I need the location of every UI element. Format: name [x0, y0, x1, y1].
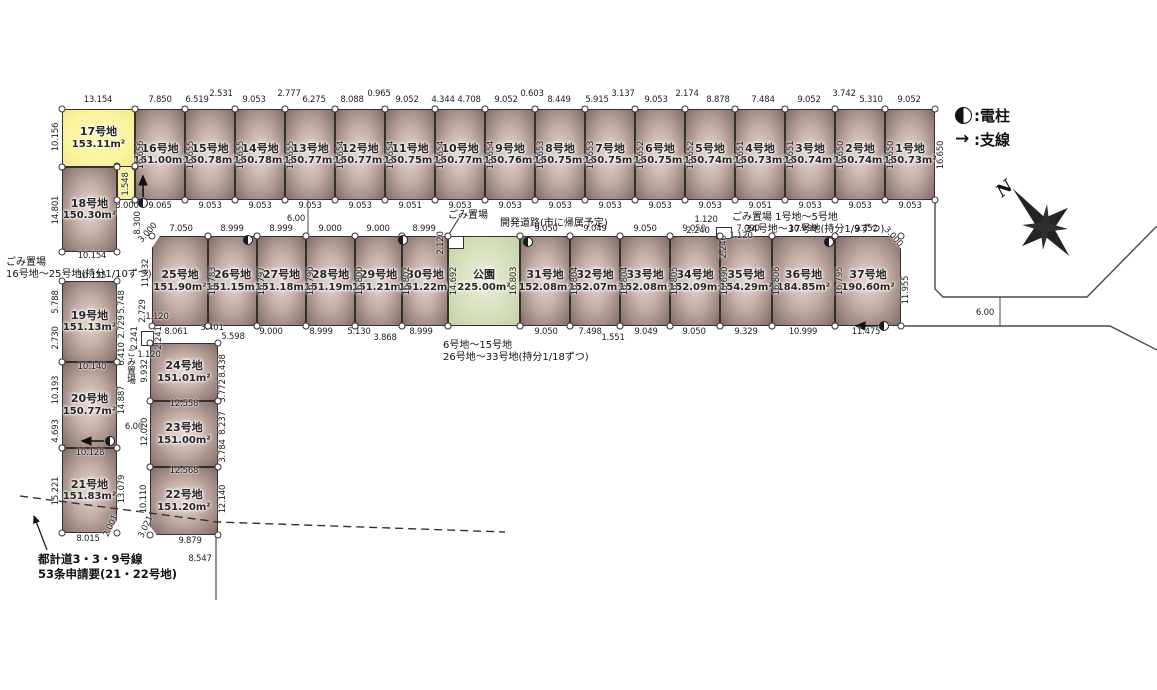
dimension-label: 16.804 [570, 267, 580, 296]
lot-number-label: 21号地 [71, 479, 108, 491]
lot-number-label: 公園 [473, 269, 495, 281]
survey-point [882, 106, 889, 113]
dimension-label: 7.498 [578, 327, 601, 337]
survey-point [382, 106, 389, 113]
dimension-label: 9.065 [148, 201, 171, 211]
dimension-label: 15.221 [51, 477, 61, 506]
lot-number-label: 28号地 [312, 269, 349, 281]
dimension-label: 14.801 [51, 196, 61, 225]
dimension-label: 2.777 [277, 89, 300, 99]
survey-point [182, 106, 189, 113]
lot-number-label: 34号地 [676, 269, 713, 281]
survey-point [114, 530, 121, 537]
dimension-label: 16.650 [836, 141, 846, 170]
dimension-label: 16.654 [336, 141, 346, 170]
utility-pole-icon [105, 436, 115, 446]
utility-pole-icon [824, 237, 834, 247]
dimension-label: 2.730 [51, 326, 61, 349]
dimension-label: 9.052 [494, 95, 517, 105]
compass-rose: N [978, 156, 1094, 277]
dimension-label: 9.053 [598, 201, 621, 211]
lot-number-label: 5号地 [695, 143, 725, 155]
dimension-label: 9.051 [398, 201, 421, 211]
dimension-label: 10.999 [789, 327, 818, 337]
lot-number-label: 15号地 [191, 143, 228, 155]
lot-number-label: 10号地 [441, 143, 478, 155]
survey-point [682, 197, 689, 204]
dimension-label: 4.344 [431, 95, 454, 105]
survey-point [582, 197, 589, 204]
survey-point [782, 197, 789, 204]
dimension-label: 9.052 [395, 95, 418, 105]
lot-number-label: 18号地 [71, 198, 108, 210]
dimension-label: 8.438 [218, 354, 228, 377]
dimension-label: 16.650 [886, 141, 896, 170]
dimension-label: 1.551 [601, 333, 624, 343]
dimension-label: 6.519 [185, 95, 208, 105]
lot-number-label: 2号地 [845, 143, 875, 155]
dimension-label: 9.053 [644, 95, 667, 105]
dimension-label: 12.020 [140, 418, 150, 447]
survey-point [59, 445, 66, 452]
utility-pole-icon [398, 235, 408, 245]
dimension-label: 8.999 [269, 224, 292, 234]
lot-area-label: 150.77m² [63, 406, 116, 417]
dimension-label: 9.053 [548, 201, 571, 211]
survey-point [114, 445, 121, 452]
dimension-label: 16.802 [402, 267, 412, 296]
dimension-label: 15.690 [720, 267, 730, 296]
lot-number-label: 11号地 [391, 143, 428, 155]
dimension-label: 8.015 [76, 534, 99, 544]
dimension-label: 9.053 [848, 201, 871, 211]
lot-number-label: 14号地 [241, 143, 278, 155]
survey-point [215, 532, 222, 539]
dimension-label: 2.241 [130, 326, 140, 349]
dimension-label: 8.449 [547, 95, 570, 105]
lot-area-label: 151.00m² [157, 435, 210, 446]
survey-point [582, 106, 589, 113]
dimension-label: 10.156 [51, 123, 61, 152]
dimension-label: 2.729 [117, 315, 127, 338]
survey-point [632, 106, 639, 113]
survey-point [667, 233, 674, 240]
dimension-label: 10.193 [51, 376, 61, 405]
survey-point [717, 323, 724, 330]
survey-point [532, 197, 539, 204]
dimension-label: 16.651 [786, 141, 796, 170]
lot-number-label: 3号地 [795, 143, 825, 155]
dimension-label: 12.140 [218, 485, 228, 514]
dimension-label: 9.053 [242, 95, 265, 105]
lot-number-label: 27号地 [263, 269, 300, 281]
dimension-label: 8.061 [164, 327, 187, 337]
survey-point [147, 398, 154, 405]
dimension-label: 16.795 [835, 267, 845, 296]
survey-point [59, 164, 66, 171]
utility-pole-icon [523, 237, 533, 247]
lot-number-label: 29号地 [360, 269, 397, 281]
lot-number-label: 1号地 [895, 143, 925, 155]
survey-point [147, 532, 154, 539]
guy-wire-arrow-icon: → [955, 129, 974, 149]
plan-road-arrow [34, 516, 47, 550]
survey-point [617, 323, 624, 330]
survey-point [232, 106, 239, 113]
lot-number-label: 20号地 [71, 393, 108, 405]
utility-pole-icon [138, 198, 148, 208]
dimension-label: 16.790 [306, 267, 316, 296]
survey-point [432, 106, 439, 113]
survey-point [114, 164, 121, 171]
dimension-label: 9.049 [634, 327, 657, 337]
road-outline-upper-right [935, 200, 1157, 297]
lot-number-label: 26号地 [214, 269, 251, 281]
lot-number-label: 32号地 [576, 269, 613, 281]
dimension-label: 7.484 [751, 95, 774, 105]
compass-north-label: N [992, 175, 1019, 202]
lot-area-label: 151.01m² [157, 373, 210, 384]
dimension-label: 9.053 [698, 201, 721, 211]
lot-number-label: 16号地 [141, 143, 178, 155]
dimension-label: 9.000 [366, 224, 389, 234]
survey-point [59, 530, 66, 537]
legend-pole-row: :電柱 [955, 103, 1010, 127]
survey-point [432, 197, 439, 204]
survey-point [205, 323, 212, 330]
survey-point [682, 106, 689, 113]
dimension-label: 10.140 [78, 362, 107, 372]
dimension-label: 6.00 [287, 214, 305, 224]
dimension-label: 10.154 [78, 251, 107, 261]
dimension-label: 9.053 [348, 201, 371, 211]
note-plan-road-2: 53条申請要(21・22号地) [38, 566, 177, 582]
dimension-label: 9.000 [259, 327, 282, 337]
survey-point [399, 323, 406, 330]
dimension-label: 5.748 [117, 290, 127, 313]
note-dev-road: 開発道路(市に帰属予定) [500, 214, 608, 229]
lot-number-label: 19号地 [71, 310, 108, 322]
dimension-label: 9.053 [248, 201, 271, 211]
survey-point [254, 233, 261, 240]
dimension-label: 1.120 [145, 312, 168, 322]
lot-number-label: 22号地 [165, 489, 202, 501]
dimension-label: 3.784 [218, 439, 228, 462]
dimension-label: 11.475 [852, 327, 881, 337]
dimension-label: 11.955 [901, 276, 911, 305]
note-garbage-park: ごみ置場 [448, 206, 488, 221]
dimension-label: 6.00 [976, 308, 994, 318]
dimension-label: 6.275 [302, 95, 325, 105]
survey-point [898, 323, 905, 330]
survey-point [732, 106, 739, 113]
survey-point [832, 323, 839, 330]
dimension-label: 10.110 [139, 485, 149, 514]
dimension-label: 16.805 [670, 267, 680, 296]
dimension-label: 5.915 [585, 95, 608, 105]
lot-19: 19号地151.13m² [62, 281, 117, 362]
lot-number-label: 24号地 [165, 360, 202, 372]
lot-number-label: 37号地 [849, 269, 886, 281]
lot-number-label: 23号地 [165, 422, 202, 434]
dimension-label: 5.788 [51, 290, 61, 313]
dimension-label: 14.692 [449, 267, 459, 296]
utility-pole-icon [955, 107, 972, 124]
dimension-label: 9.052 [797, 95, 820, 105]
survey-point [769, 323, 776, 330]
lot-number-label: 8号地 [545, 143, 575, 155]
dimension-label: 16.651 [736, 141, 746, 170]
dimension-label: 2.729 [138, 299, 148, 322]
note-plan-road-1: 都計道3・3・9号線 [38, 551, 143, 567]
survey-point [882, 197, 889, 204]
survey-point [667, 323, 674, 330]
dimension-label: 8.878 [706, 95, 729, 105]
note-garbage-left-2: 16号地～25号地(持分1/10ずつ) [6, 265, 152, 280]
dimension-label: 9.050 [534, 327, 557, 337]
dimension-label: 7.050 [169, 224, 192, 234]
survey-point [205, 233, 212, 240]
survey-point [382, 197, 389, 204]
survey-point [215, 464, 222, 471]
utility-pole-icon [243, 235, 253, 245]
dimension-label: 3.868 [373, 333, 396, 343]
dimension-label: 9.879 [178, 536, 201, 546]
dimension-label: 8.999 [220, 224, 243, 234]
dimension-label: 16.783 [208, 267, 218, 296]
lot-number-label: 31号地 [526, 269, 563, 281]
lot-number-label: 6号地 [645, 143, 675, 155]
road-outline-lower-right [901, 326, 1157, 350]
dimension-label: 9.050 [633, 224, 656, 234]
survey-point [482, 197, 489, 204]
dimension-label: 5.130 [347, 327, 370, 337]
survey-point [282, 106, 289, 113]
survey-point [114, 359, 121, 366]
dimension-label: 9.053 [648, 201, 671, 211]
dimension-label: 12.558 [170, 399, 199, 409]
dimension-label: 8.237 [218, 411, 228, 434]
dimension-label: 16.654 [486, 141, 496, 170]
dimension-label: 1.120 [694, 215, 717, 225]
dimension-label: 16.653 [586, 141, 596, 170]
survey-point [445, 323, 452, 330]
survey-point [567, 323, 574, 330]
lot-area-label: 150.30m² [63, 210, 116, 221]
survey-point [215, 340, 222, 347]
lot-area-label: 152.08m² [518, 282, 571, 293]
dimension-label: 2.531 [209, 89, 232, 99]
survey-point [132, 106, 139, 113]
dimension-label: 3.137 [611, 89, 634, 99]
dimension-label: 5.598 [221, 332, 244, 342]
lot-area-label: 151.20m² [157, 502, 210, 513]
survey-point [149, 323, 156, 330]
legend-wire-row: → :支線 [955, 127, 1010, 151]
lot-number-label: 33号地 [626, 269, 663, 281]
dimension-label: 13.154 [84, 95, 113, 105]
dimension-label: 13.079 [117, 475, 127, 504]
survey-point [932, 106, 939, 113]
lot-17: 17号地153.11m² [62, 109, 135, 167]
survey-point [59, 359, 66, 366]
dimension-label: 16.654 [386, 141, 396, 170]
dimension-label: 16.804 [620, 267, 630, 296]
lot-number-label: 9号地 [495, 143, 525, 155]
survey-point [632, 197, 639, 204]
dimension-label: 16.655 [286, 141, 296, 170]
lot-31: 31号地152.08m² [520, 236, 570, 326]
dimension-label: 16.653 [536, 141, 546, 170]
lot-number-label: 7号地 [595, 143, 625, 155]
survey-point [832, 197, 839, 204]
dimension-label: 9.000 [318, 224, 341, 234]
dimension-label: 9.053 [898, 201, 921, 211]
utility-pole-icon [879, 321, 889, 331]
survey-point [898, 233, 905, 240]
survey-point [517, 323, 524, 330]
dimension-label: 16.800 [355, 267, 365, 296]
dimension-label: 16.650 [936, 141, 946, 170]
survey-point [482, 106, 489, 113]
dimension-label: 7.850 [148, 95, 171, 105]
survey-point [352, 323, 359, 330]
lot-number-label: 13号地 [291, 143, 328, 155]
survey-point [147, 464, 154, 471]
survey-point [149, 233, 156, 240]
survey-point [732, 197, 739, 204]
survey-point [114, 249, 121, 256]
survey-point [254, 323, 261, 330]
dimension-label: 5.310 [859, 95, 882, 105]
survey-point [182, 197, 189, 204]
survey-point [282, 197, 289, 204]
survey-point [617, 233, 624, 240]
dimension-label: 16.655 [236, 141, 246, 170]
dimension-label: 16.803 [509, 267, 519, 296]
survey-point [132, 163, 139, 170]
dimension-label: 9.053 [298, 201, 321, 211]
lot-area-label: 225.00m² [457, 282, 510, 293]
dimension-label: 4.708 [457, 95, 480, 105]
lot-number-label: 17号地 [80, 126, 117, 138]
dimension-label: 8.547 [188, 554, 211, 564]
dimension-label: 16.797 [257, 267, 267, 296]
survey-point [215, 398, 222, 405]
survey-point [303, 233, 310, 240]
survey-point [782, 106, 789, 113]
note-garbage-col: ごみ置場 [124, 348, 137, 384]
dimension-label: 8.088 [340, 95, 363, 105]
dimension-label: 8.999 [309, 327, 332, 337]
legend-pole-label: :電柱 [974, 105, 1010, 126]
dimension-label: 9.329 [734, 327, 757, 337]
survey-point [352, 233, 359, 240]
dimension-label: 2.241 [154, 326, 164, 349]
note-garbage-mid-2: 26号地～33号地(持分1/18ずつ) [443, 348, 589, 363]
lot-number-label: 12号地 [341, 143, 378, 155]
survey-point [332, 106, 339, 113]
survey-point [114, 197, 121, 204]
dimension-label: 16.652 [636, 141, 646, 170]
survey-point [232, 197, 239, 204]
dimension-label: 1.548 [121, 172, 131, 195]
dimension-label: 16.652 [686, 141, 696, 170]
dimension-label: 2.240 [686, 226, 709, 236]
dimension-label: 16.654 [436, 141, 446, 170]
dimension-label: 4.693 [51, 419, 61, 442]
survey-point [532, 106, 539, 113]
dimension-label: 2.174 [675, 89, 698, 99]
lot-area-label: 153.11m² [72, 139, 125, 150]
lot-area-label: 190.60m² [841, 282, 894, 293]
dimension-label: 1.120 [137, 350, 160, 360]
dimension-label: 12.568 [170, 466, 199, 476]
dimension-label: 9.052 [897, 95, 920, 105]
lot-area-label: 151.13m² [63, 322, 116, 333]
lot-number-label: 35号地 [727, 269, 764, 281]
dimension-label: 8.999 [412, 224, 435, 234]
dimension-label: 16.655 [186, 141, 196, 170]
dimension-label: 8.999 [409, 327, 432, 337]
lot-23: 23号地151.00m² [150, 401, 218, 467]
lot-area-label: 151.83m² [63, 491, 116, 502]
survey-point [445, 233, 452, 240]
legend-wire-label: :支線 [974, 129, 1010, 150]
dimension-label: 9.053 [498, 201, 521, 211]
survey-point [717, 233, 724, 240]
survey-point [59, 249, 66, 256]
survey-point [59, 106, 66, 113]
dimension-label: 14.887 [117, 386, 127, 415]
dimension-label: 0.965 [367, 89, 390, 99]
dimension-label: 0.603 [520, 89, 543, 99]
survey-point [517, 233, 524, 240]
dimension-label: 10.128 [76, 448, 105, 458]
dimension-label: 3.742 [832, 89, 855, 99]
lot-18: 18号地150.30m² [62, 167, 117, 252]
dimension-label: 9.050 [682, 327, 705, 337]
lot-number-label: 4号地 [745, 143, 775, 155]
lot-number-label: 36号地 [785, 269, 822, 281]
survey-point [147, 340, 154, 347]
survey-point [832, 106, 839, 113]
dimension-label: 9.932 [140, 359, 150, 382]
lot-22: 22号地151.20m² [150, 467, 218, 535]
dimension-label: 16.806 [772, 267, 782, 296]
lot-area-label: 151.90m² [153, 282, 206, 293]
lot-area-label: 184.85m² [777, 282, 830, 293]
survey-point [303, 323, 310, 330]
survey-point [332, 197, 339, 204]
survey-point [567, 233, 574, 240]
map-legend: :電柱 → :支線 [955, 103, 1010, 151]
lot-number-label: 25号地 [161, 269, 198, 281]
dimension-label: 9.053 [198, 201, 221, 211]
land-plot-map: N :電柱 → :支線 ごみ置場 16号地～25号地(持分1/10ずつ) 開発道… [0, 0, 1157, 690]
note-garbage-right-2: 34号地～37号地(持分1/9ずつ) [745, 220, 884, 235]
survey-point [932, 197, 939, 204]
